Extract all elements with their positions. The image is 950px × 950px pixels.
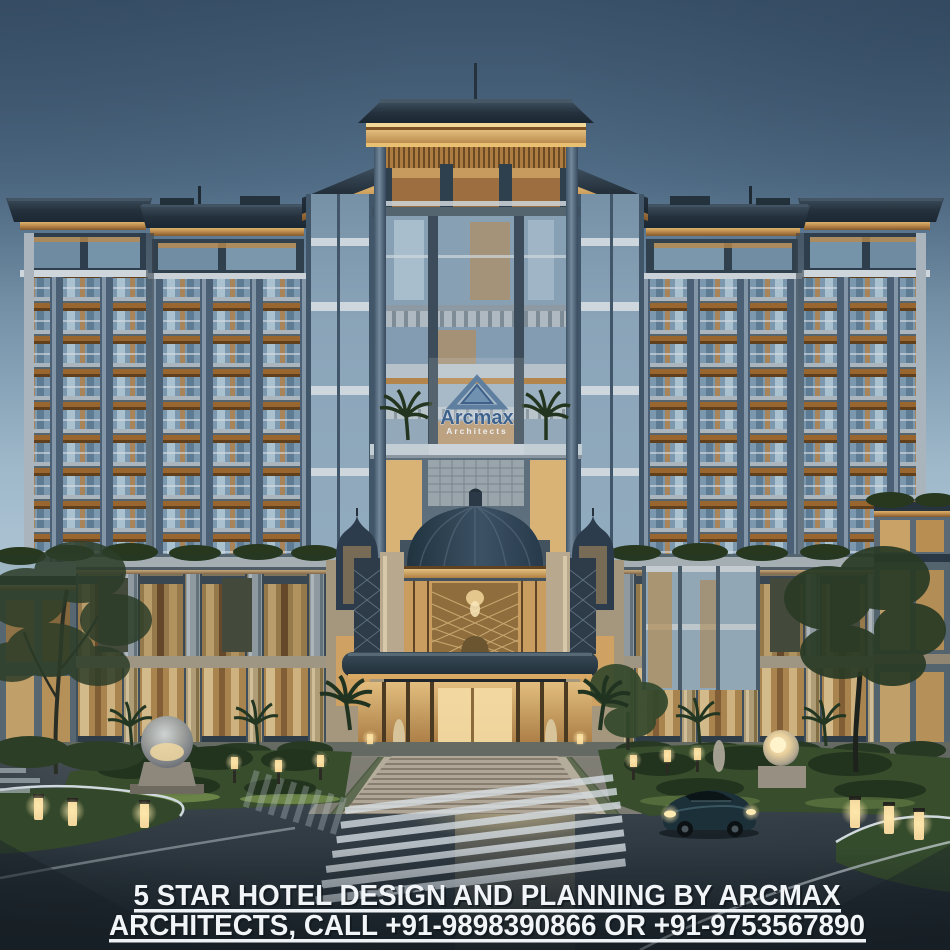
svg-text:5 STAR HOTEL DESIGN AND PLANNI: 5 STAR HOTEL DESIGN AND PLANNING BY ARCM… <box>134 880 842 912</box>
svg-text:ARCHITECTS, CALL +91-989839086: ARCHITECTS, CALL +91-9898390866 OR +91-9… <box>109 910 865 942</box>
svg-text:Architects: Architects <box>446 426 508 436</box>
